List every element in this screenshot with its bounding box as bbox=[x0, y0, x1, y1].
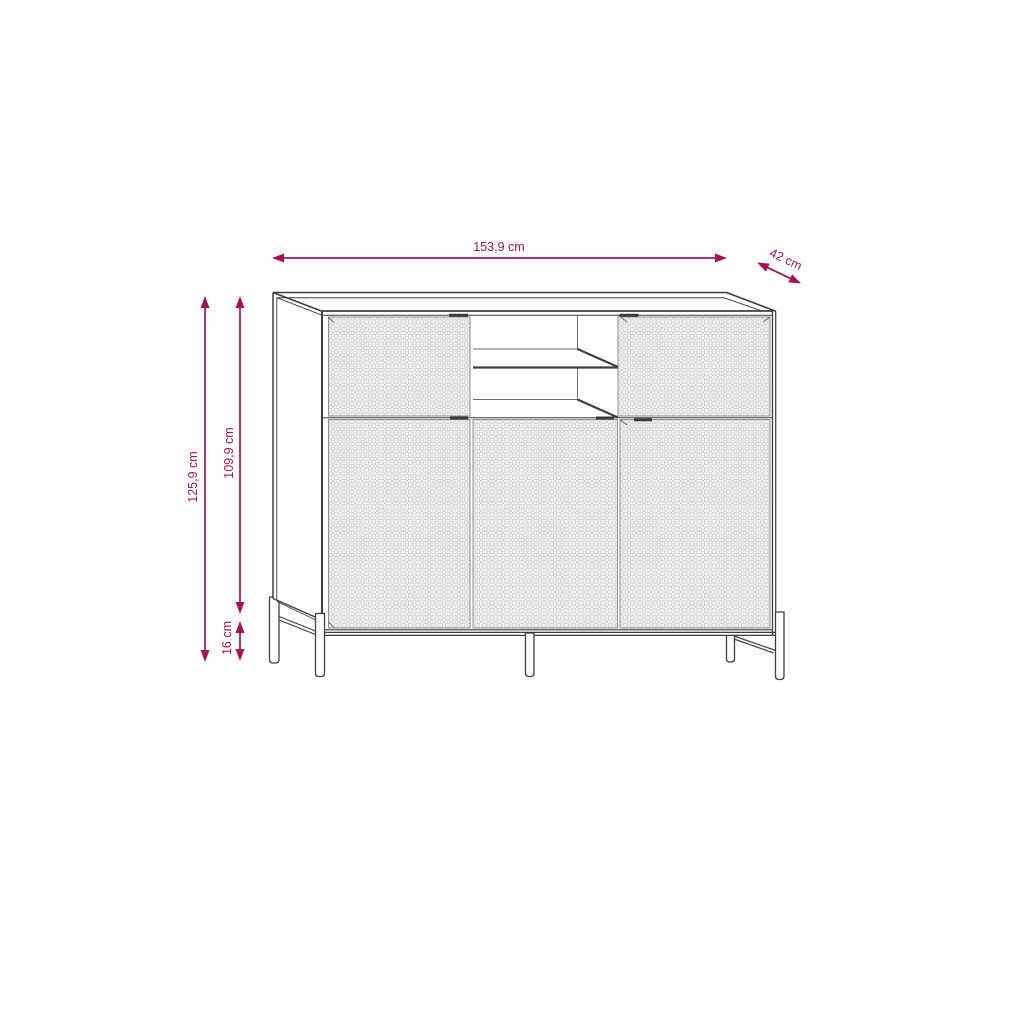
total-height-dimension: 125,9 cm bbox=[186, 296, 210, 662]
door-top-right bbox=[618, 317, 770, 416]
door-bottom-right bbox=[620, 420, 770, 629]
door-bottom-left bbox=[329, 420, 471, 629]
middle-leg bbox=[526, 633, 535, 677]
leg-height-dimension: 16 cm bbox=[220, 621, 245, 661]
width-dimension-label: 153,9 cm bbox=[473, 240, 524, 254]
total-height-dimension-label: 125,9 cm bbox=[186, 451, 200, 502]
door-top-left bbox=[329, 317, 471, 416]
cabinet-height-dimension: 109,9 cm bbox=[222, 296, 245, 614]
depth-dimension-label: 42 cm bbox=[767, 246, 804, 273]
door-bottom-middle bbox=[473, 420, 618, 629]
left-side-panel bbox=[273, 293, 322, 621]
furniture-dimension-diagram: 153,9 cm 42 cm 125,9 cm 109,9 cm 16 cm bbox=[0, 0, 1024, 1024]
width-dimension: 153,9 cm bbox=[272, 240, 727, 263]
cabinet-height-dimension-label: 109,9 cm bbox=[222, 427, 236, 478]
front-left-leg bbox=[316, 614, 325, 677]
back-left-leg bbox=[270, 597, 280, 663]
sideboard-line-drawing: 153,9 cm 42 cm 125,9 cm 109,9 cm 16 cm bbox=[0, 0, 1024, 1024]
leg-height-dimension-label: 16 cm bbox=[220, 621, 234, 655]
back-right-leg bbox=[727, 634, 735, 663]
top-panel bbox=[273, 293, 773, 312]
depth-dimension: 42 cm bbox=[757, 246, 804, 284]
front-right-leg bbox=[776, 612, 785, 680]
